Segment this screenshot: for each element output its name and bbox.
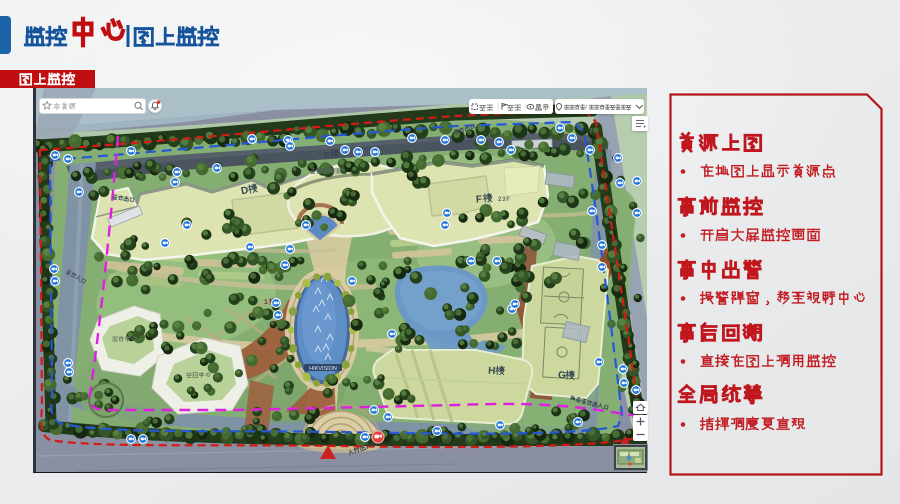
svg-text:F: F xyxy=(476,194,483,205)
svg-text:G: G xyxy=(558,370,567,382)
svg-text:/: / xyxy=(585,105,587,111)
svg-text:HIKVISION: HIKVISION xyxy=(309,366,337,372)
svg-text:E: E xyxy=(324,150,331,161)
svg-text:1: 1 xyxy=(264,299,268,306)
svg-text:H: H xyxy=(488,366,496,377)
svg-text:F: F xyxy=(506,197,510,203)
